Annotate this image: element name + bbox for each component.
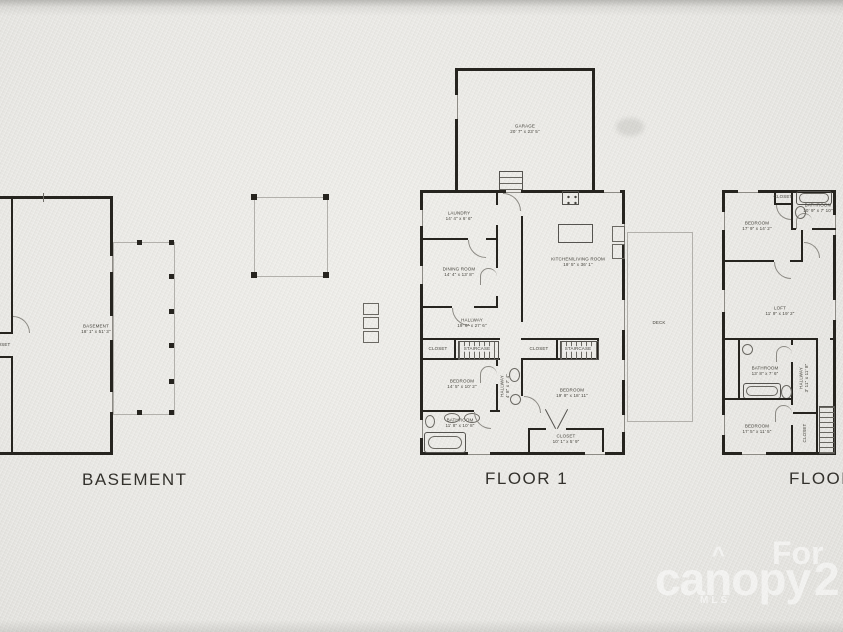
wall [420, 190, 423, 455]
room-dims: 19' 6" x 27' 6" [457, 323, 486, 329]
deck-post [323, 194, 329, 200]
closet-door-leaf [545, 409, 556, 429]
toilet-icon [425, 415, 435, 428]
window [420, 420, 423, 438]
room-label-bedroom-top: BEDROOM 17' 9" x 14' 2" [742, 220, 771, 231]
room-name: CLOSET [0, 342, 10, 348]
deck-door [622, 300, 625, 330]
window [833, 300, 836, 320]
wall [521, 358, 523, 396]
room-dims: 19' 9" x 18' 11" [556, 393, 588, 399]
hvac-unit [363, 303, 379, 315]
room-dims: 14' 4" x 6' 6" [446, 216, 473, 222]
room-name: CLOSET [429, 346, 448, 352]
deck-outline [113, 242, 175, 415]
wall [528, 428, 530, 452]
door-arc [775, 405, 792, 422]
room-label-bathroom-mid: BATHROOM 13' 8" x 7' 6" [752, 365, 779, 376]
wall [420, 190, 625, 193]
wall [420, 306, 452, 308]
room-label-closet-top: CLOSET [774, 194, 793, 200]
room-label-closet-f2: CLOSET [802, 424, 808, 443]
room-label-basement-closet: CLOSET [0, 342, 10, 348]
wall [791, 338, 793, 345]
door-arc [804, 242, 820, 258]
wall [496, 225, 498, 268]
sink-icon [742, 344, 753, 355]
window [604, 190, 620, 193]
door-arc [480, 268, 497, 285]
wall [496, 190, 498, 205]
window [722, 212, 725, 230]
wall [420, 238, 468, 240]
wall [592, 68, 595, 190]
room-name: STAIRCASE [565, 346, 592, 352]
deck-post [169, 379, 174, 384]
wall [11, 356, 13, 455]
wall [566, 428, 604, 430]
deck-post [169, 240, 174, 245]
door-arc [503, 193, 521, 211]
room-dims: 14' 5" x 10' 2" [447, 384, 476, 390]
window [420, 266, 423, 284]
window [738, 190, 758, 193]
plan-title-floor1: FLOOR 1 [485, 469, 568, 489]
room-name: CLOSET [802, 424, 808, 443]
wall [455, 68, 458, 190]
wall [528, 428, 546, 430]
room-label-hallway-f2: HALLWAY 3' 11" x 11' 8" [798, 364, 809, 393]
window [468, 452, 490, 455]
kitchen-island [558, 224, 593, 243]
room-dims: 11' 9" x 19' 2" [765, 311, 794, 317]
room-label-dining: DINING ROOM 14' 4" x 13' 8" [443, 266, 476, 277]
wall [791, 425, 793, 455]
wall [602, 428, 604, 452]
room-label-garage: GARAGE 20' 7" x 23' 5" [510, 123, 539, 134]
deck-outline [254, 197, 328, 277]
wall [801, 230, 803, 262]
room-dims: 13' 8" x 7' 6" [752, 371, 779, 377]
room-label-closet-bottom: CLOSET 10' 1" x 5' 9" [553, 433, 580, 444]
room-dims: 17' 9" x 14' 2" [742, 226, 771, 232]
room-dims: 20' 7" x 23' 5" [510, 129, 539, 135]
room-label-basement: BASEMENT 18' 1" x 51' 3" [81, 323, 110, 334]
wall [793, 412, 816, 414]
stove-icon [562, 191, 579, 205]
wall [0, 356, 13, 358]
wall [722, 260, 774, 262]
room-dims: 18' 1" x 51' 3" [81, 329, 110, 335]
garage-door-opening [455, 95, 458, 119]
deck-post [169, 274, 174, 279]
room-label-deck: DECK [652, 320, 665, 326]
wall [722, 338, 818, 340]
toilet-icon [781, 385, 792, 399]
door-arc [468, 240, 486, 258]
room-label-bedroom-right: BEDROOM 19' 9" x 18' 11" [556, 387, 588, 398]
staircase [819, 406, 835, 454]
window [833, 215, 836, 235]
watermark-roof-icon: ^ [712, 542, 725, 568]
window [742, 452, 766, 455]
door-arc [13, 316, 30, 333]
watermark-mls: MLS [700, 595, 730, 606]
bathtub-inner [428, 436, 462, 449]
room-name: CLOSET [530, 346, 549, 352]
room-dims: 10' 1" x 5' 9" [553, 439, 580, 445]
bathtub-inner [746, 386, 778, 396]
deck-post [137, 240, 142, 245]
wall [454, 338, 456, 360]
wall [812, 228, 836, 230]
photo-smudge [616, 118, 644, 136]
deck-post [251, 194, 257, 200]
wall [0, 332, 13, 334]
room-dims: 14' 4" x 13' 8" [444, 272, 473, 278]
room-label-closet-right: CLOSET [530, 346, 549, 352]
window [722, 415, 725, 435]
toilet-icon [509, 368, 520, 382]
door-arc [480, 366, 497, 383]
door-arc [776, 205, 791, 220]
deck-post [169, 343, 174, 348]
wall [455, 68, 595, 71]
hvac-unit [363, 331, 379, 343]
door-arc [524, 396, 541, 413]
room-dims: 19' 5" x 36' 1" [563, 262, 592, 268]
door-arc [474, 412, 491, 429]
room-dims: 17' 5" x 11' 5" [742, 429, 771, 435]
closet-door-leaf [557, 409, 568, 429]
room-dims: 10' 9" x 7' 10" [803, 208, 832, 214]
wall [0, 452, 113, 455]
deck-post [323, 272, 329, 278]
wall [521, 338, 599, 340]
room-name: DECK [652, 320, 665, 326]
room-name: STAIRCASE [464, 346, 491, 352]
door-arc [774, 262, 791, 279]
watermark-number: 2 [814, 552, 840, 606]
cabinet-icon [612, 226, 625, 242]
wall-tick [43, 193, 44, 202]
floor-plan-photo: BASEMENT 18' 1" x 51' 3" CLOSET BASEMENT… [0, 0, 843, 632]
wall [722, 398, 793, 400]
wall [420, 338, 500, 340]
deck-post [169, 410, 174, 415]
room-label-stair-right: STAIRCASE [563, 346, 593, 352]
hvac-unit [363, 317, 379, 329]
watermark-brand: canopy [655, 552, 810, 606]
entry-steps [499, 171, 523, 191]
wall [490, 410, 500, 412]
wall [496, 360, 498, 366]
wall [420, 410, 474, 412]
wall [791, 400, 793, 405]
wall [0, 196, 113, 199]
door-opening [506, 190, 521, 193]
wall [496, 384, 498, 412]
deck-post [137, 410, 142, 415]
cabinet-icon [612, 244, 625, 259]
deck-post [251, 272, 257, 278]
room-label-kitchen-living: KITCHEN/LIVING ROOM 19' 5" x 36' 1" [551, 256, 605, 267]
plan-title-floor2: FLOOR 2 [789, 469, 843, 489]
wall [830, 338, 836, 340]
wall [816, 338, 818, 455]
deck-outline [627, 232, 693, 422]
window [622, 360, 625, 380]
window [622, 415, 625, 432]
window [420, 210, 423, 226]
room-label-bedroom-bottom: BEDROOM 17' 5" x 11' 5" [742, 423, 771, 434]
room-label-hallway: HALLWAY 19' 6" x 27' 6" [457, 317, 486, 328]
wall [556, 338, 558, 360]
room-label-bedroom-left: BEDROOM 14' 5" x 10' 2" [447, 378, 476, 389]
room-label-closet-left: CLOSET [429, 346, 448, 352]
wall [11, 196, 13, 332]
wall [521, 216, 523, 322]
window [722, 290, 725, 312]
wall [474, 306, 498, 308]
door-arc [776, 346, 792, 362]
room-name: CLOSET [774, 194, 793, 200]
plan-title-basement: BASEMENT [82, 470, 188, 490]
wall [738, 338, 740, 400]
deck-post [169, 309, 174, 314]
room-label-laundry: LAUNDRY 14' 4" x 6' 6" [446, 210, 473, 221]
window [585, 452, 605, 455]
room-dims: 3' 11" x 11' 8" [804, 364, 810, 393]
room-label-bathroom-top: BATHROOM 10' 9" x 7' 10" [803, 202, 832, 213]
sink-icon [444, 413, 460, 423]
room-dims: 11' 8" x 10' 8" [445, 423, 474, 429]
room-label-loft: LOFT 11' 9" x 19' 2" [765, 305, 794, 316]
room-label-stair-left: STAIRCASE [462, 346, 492, 352]
sink-icon [510, 394, 521, 405]
